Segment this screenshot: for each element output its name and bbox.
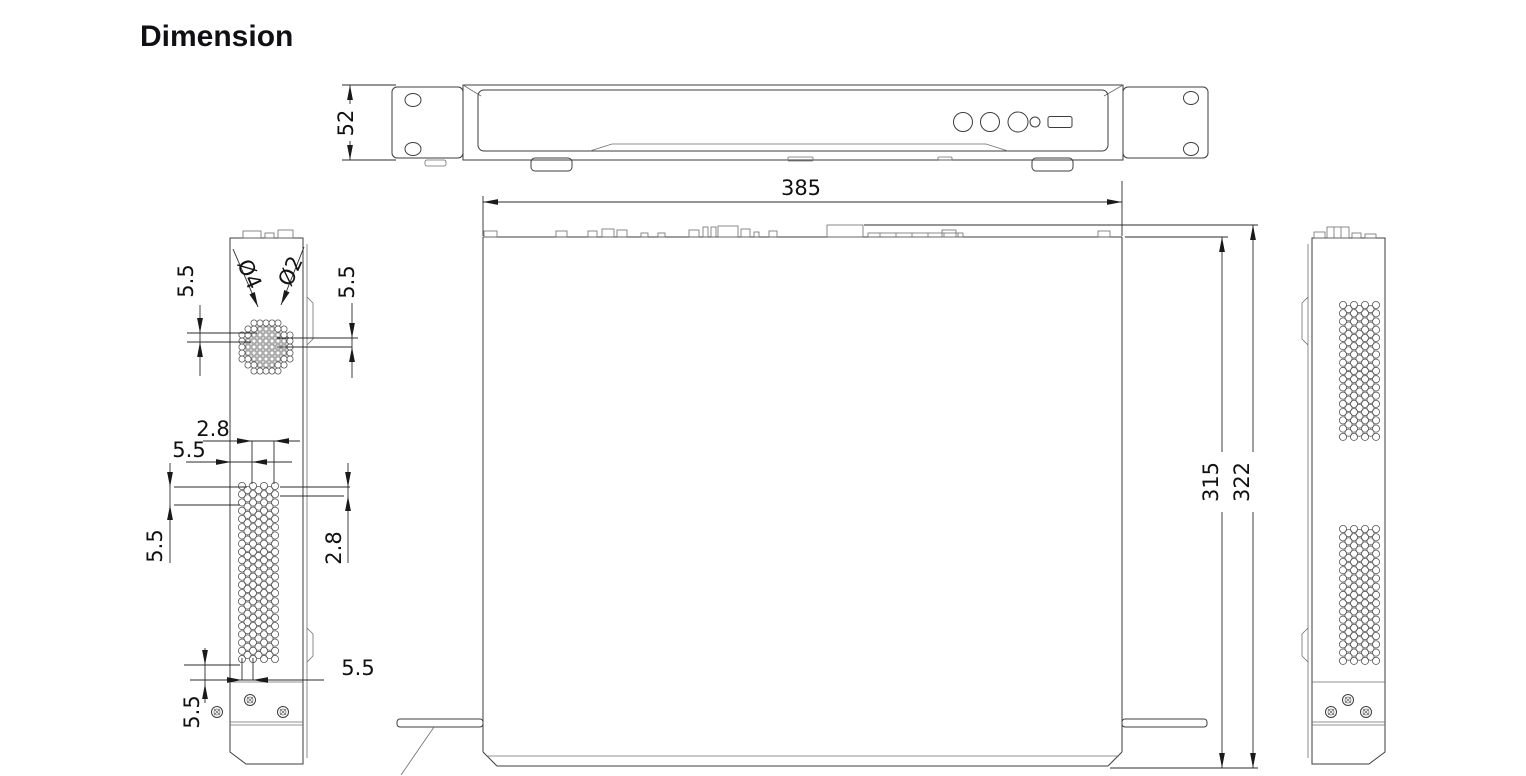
dimension-arrow xyxy=(349,347,355,362)
front-led xyxy=(1030,117,1040,127)
top-ear-left xyxy=(397,719,483,727)
fan-hole xyxy=(251,368,257,374)
rear-connector xyxy=(617,230,627,237)
rear-connector xyxy=(769,231,777,237)
vent-hole xyxy=(1372,657,1379,664)
fan-hole xyxy=(258,357,262,361)
rear-connector xyxy=(711,227,716,237)
side-connector xyxy=(243,231,261,238)
fan-hole xyxy=(287,350,293,356)
dim-label-depth-inner: 315 xyxy=(1199,462,1223,502)
vent-hole xyxy=(1339,657,1346,664)
front-bevel-right xyxy=(1104,85,1123,96)
dimension-arrowheads xyxy=(167,85,1256,768)
top-ear-right xyxy=(1122,719,1207,727)
dim-vent-row-left: 5.5 xyxy=(143,463,247,563)
left-side-view xyxy=(212,230,314,764)
fan-hole xyxy=(263,368,269,374)
right-screws xyxy=(1326,695,1372,718)
dimension-arrow xyxy=(202,684,208,699)
rear-connector xyxy=(556,231,567,237)
fan-hole xyxy=(246,351,250,355)
dimension-arrow xyxy=(237,438,252,444)
dim-width: 385 xyxy=(483,176,1122,236)
fan-hole xyxy=(264,327,268,331)
fan-hole xyxy=(276,351,280,355)
dimension-arrow xyxy=(197,318,203,333)
fan-hole xyxy=(270,363,274,367)
dimension-arrow xyxy=(216,459,231,465)
fan-hole xyxy=(270,339,274,343)
dim-label-width: 385 xyxy=(781,176,821,200)
dimension-arrow xyxy=(349,323,355,338)
fan-hole xyxy=(239,344,245,350)
dimension-arrow xyxy=(345,496,351,511)
right-top-connectors xyxy=(1314,227,1376,238)
right-side-view xyxy=(1302,227,1385,764)
dim-label-depth-outer: 322 xyxy=(1230,462,1254,502)
dim-label-fan-offset-right: 5.5 xyxy=(335,265,359,298)
fan-hole xyxy=(239,350,245,356)
rear-connector xyxy=(703,227,708,237)
dim-vent-col-pitch: 2.8 xyxy=(196,417,300,484)
fan-hole xyxy=(239,338,245,344)
dimension-arrow xyxy=(1250,753,1256,768)
dimension-arrow xyxy=(278,290,289,306)
side-tab xyxy=(1302,297,1308,345)
fan-hole xyxy=(258,339,262,343)
fan-hole xyxy=(264,339,268,343)
dimension-arrow xyxy=(249,292,260,308)
vent-hole xyxy=(260,655,267,662)
fan-hole xyxy=(276,357,280,361)
rear-connector xyxy=(689,230,699,237)
side-connector xyxy=(278,230,293,238)
fan-hole xyxy=(258,345,262,349)
side-connector xyxy=(1314,232,1325,238)
rear-connector xyxy=(718,226,738,237)
dimension-arrow xyxy=(347,85,353,100)
rear-connector xyxy=(641,233,648,237)
fan-hole xyxy=(282,351,286,355)
right-vent-holes xyxy=(1339,301,1379,664)
dimension-arrow xyxy=(1107,199,1122,205)
front-panel-recess xyxy=(590,144,1008,151)
left-vent-holes xyxy=(238,482,278,662)
front-view xyxy=(392,85,1208,171)
rear-connectors xyxy=(484,225,1110,237)
dim-label-front-height: 52 xyxy=(334,110,358,137)
front-tab xyxy=(425,160,446,166)
mount-ear-right xyxy=(1123,87,1208,158)
dimension-arrow xyxy=(483,199,498,205)
fan-hole xyxy=(252,339,256,343)
side-connector xyxy=(1365,234,1376,238)
fan-hole xyxy=(263,320,269,326)
dim-label-vent-col-offset: 5.5 xyxy=(172,438,205,462)
dimension-arrow xyxy=(345,472,351,487)
front-chassis-outline xyxy=(463,85,1123,160)
vent-hole xyxy=(1350,657,1357,664)
top-view xyxy=(397,225,1207,775)
left-top-connectors xyxy=(243,230,293,238)
dim-label-fan-offset-left: 5.5 xyxy=(174,264,198,297)
vent-hole xyxy=(1361,657,1368,664)
dim-label-vent-row-right: 2.8 xyxy=(322,531,346,564)
fan-hole xyxy=(245,356,251,362)
mount-ear-left xyxy=(392,87,463,158)
fan-hole xyxy=(269,320,275,326)
dim-vent-bottom-right: 5.5 xyxy=(190,656,375,680)
dim-label-vent-row-left: 5.5 xyxy=(143,529,167,562)
fan-hole xyxy=(252,345,256,349)
dimension-arrow xyxy=(1219,753,1225,768)
side-connector xyxy=(265,233,274,238)
fan-hole xyxy=(275,326,281,332)
top-corner-bevel xyxy=(1108,752,1122,766)
fan-hole xyxy=(270,333,274,337)
dimension-arrow xyxy=(274,438,289,444)
leader-fan-hole-outer: Ø4 xyxy=(232,249,266,307)
rear-connector xyxy=(588,231,597,237)
front-button xyxy=(981,113,1000,132)
fan-hole xyxy=(287,356,293,362)
dimension-arrow xyxy=(1250,225,1256,240)
rear-connector xyxy=(741,229,750,237)
dimension-arrow xyxy=(347,145,353,160)
fan-hole xyxy=(258,333,262,337)
dim-label-vent-bottom-right: 5.5 xyxy=(341,656,374,680)
rear-connector xyxy=(484,231,497,237)
left-screws xyxy=(212,695,289,718)
fan-hole xyxy=(287,338,293,344)
fan-hole xyxy=(269,368,275,374)
side-connector xyxy=(1327,227,1349,238)
ear-hole xyxy=(405,143,421,156)
ear-hole xyxy=(1184,92,1199,105)
fan-hole xyxy=(281,332,287,338)
dimension-arrow xyxy=(197,342,203,357)
vent-hole xyxy=(1361,433,1368,440)
side-tab xyxy=(1302,628,1308,662)
fan-hole xyxy=(281,326,287,332)
dim-vent-row-right: 2.8 xyxy=(280,463,350,565)
fan-hole xyxy=(246,345,250,349)
rear-connector xyxy=(827,225,863,237)
dim-label-vent-bottom-left: 5.5 xyxy=(180,695,204,728)
dimension-drawing: 52 385 315 322 5.5 5.5 xyxy=(0,0,1526,776)
fan-hole xyxy=(264,345,268,349)
fan-hole xyxy=(251,326,257,332)
top-corner-bevel xyxy=(483,752,497,766)
vent-hole xyxy=(271,655,278,662)
fan-hole xyxy=(270,327,274,331)
dim-front-height: 52 xyxy=(334,85,396,160)
fan-hole xyxy=(287,332,293,338)
fan-hole xyxy=(270,357,274,361)
fan-hole xyxy=(270,345,274,349)
front-panel xyxy=(478,90,1108,151)
fan-hole xyxy=(276,333,280,337)
front-usb-port xyxy=(1048,117,1072,128)
rear-connector xyxy=(754,232,759,237)
front-button xyxy=(1008,112,1028,132)
fan-hole xyxy=(264,333,268,337)
fan-hole xyxy=(264,351,268,355)
rear-connector xyxy=(602,229,614,237)
dim-depth-inner: 315 xyxy=(1125,237,1228,768)
fan-hole xyxy=(275,320,281,326)
dimension-arrow xyxy=(252,459,267,465)
dimension-arrow xyxy=(167,505,173,520)
fan-hole xyxy=(281,356,287,362)
vent-hole xyxy=(1350,433,1357,440)
ear-leader-line xyxy=(401,727,434,775)
fan-hole xyxy=(252,333,256,337)
dimension-arrow xyxy=(167,472,173,487)
dim-label-fan-hole-outer: Ø4 xyxy=(232,256,266,293)
fan-hole xyxy=(246,339,250,343)
vent-hole xyxy=(1339,433,1346,440)
fan-hole xyxy=(251,362,257,368)
fan-hole xyxy=(245,362,251,368)
fan-hole xyxy=(282,339,286,343)
fan-hole xyxy=(252,351,256,355)
fan-hole xyxy=(264,363,268,367)
fan-hole xyxy=(276,339,280,343)
rear-connector xyxy=(658,233,665,237)
side-tab xyxy=(307,628,313,662)
fan-hole xyxy=(275,362,281,368)
fan-hole xyxy=(252,357,256,361)
fan-hole xyxy=(281,362,287,368)
dim-vent-bottom-left: 5.5 xyxy=(180,648,240,729)
dimension-arrow xyxy=(202,650,208,665)
fan-hole xyxy=(239,356,245,362)
fan-hole xyxy=(270,351,274,355)
fan-hole xyxy=(264,357,268,361)
rear-connector xyxy=(868,233,963,237)
fan-hole xyxy=(245,326,251,332)
dimension-arrow xyxy=(1219,237,1225,252)
fan-hole xyxy=(257,320,263,326)
fan-hole xyxy=(258,327,262,331)
fan-hole xyxy=(258,363,262,367)
fan-hole xyxy=(258,351,262,355)
fan-hole xyxy=(257,368,263,374)
rear-connector xyxy=(1098,231,1110,237)
side-connector xyxy=(1352,233,1361,238)
vent-hole xyxy=(1372,433,1379,440)
dimension-page: Dimension xyxy=(0,0,1526,776)
front-button xyxy=(954,113,973,132)
fan-hole xyxy=(275,368,281,374)
ear-hole xyxy=(1184,143,1199,156)
ear-hole xyxy=(405,94,421,107)
fan-hole xyxy=(251,320,257,326)
